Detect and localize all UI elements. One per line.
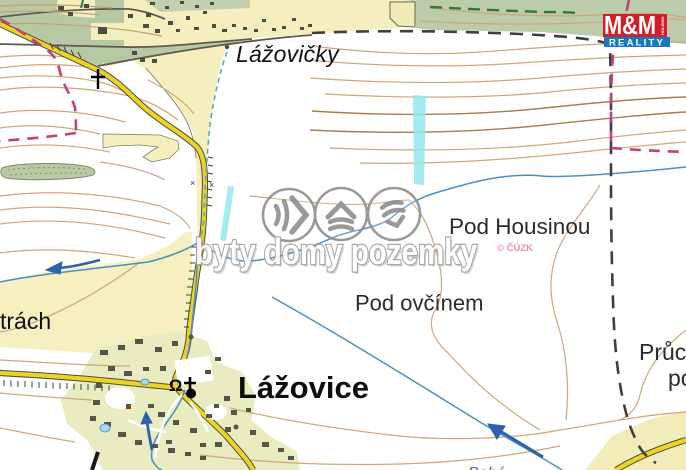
svg-text:poz: poz (668, 365, 686, 391)
svg-text:Lážovičky: Lážovičky (236, 41, 340, 67)
svg-text:×: × (209, 180, 214, 190)
svg-text:Bohá: Bohá (468, 465, 505, 470)
svg-text:REALITY: REALITY (609, 38, 665, 49)
svg-text:Pod ovčínem: Pod ovčínem (355, 291, 483, 316)
svg-text:Ω: Ω (169, 377, 182, 395)
svg-text:© ČÚZK: © ČÚZK (497, 242, 533, 254)
svg-text:byty domy pozemky: byty domy pozemky (195, 231, 477, 272)
svg-text:trách: trách (0, 308, 51, 334)
svg-text:HOLDING: HOLDING (660, 17, 665, 35)
svg-text:M&M: M&M (604, 10, 656, 40)
svg-text:×: × (190, 178, 195, 188)
svg-text:Lážovice: Lážovice (238, 370, 369, 405)
svg-text:Průch: Průch (639, 339, 686, 365)
